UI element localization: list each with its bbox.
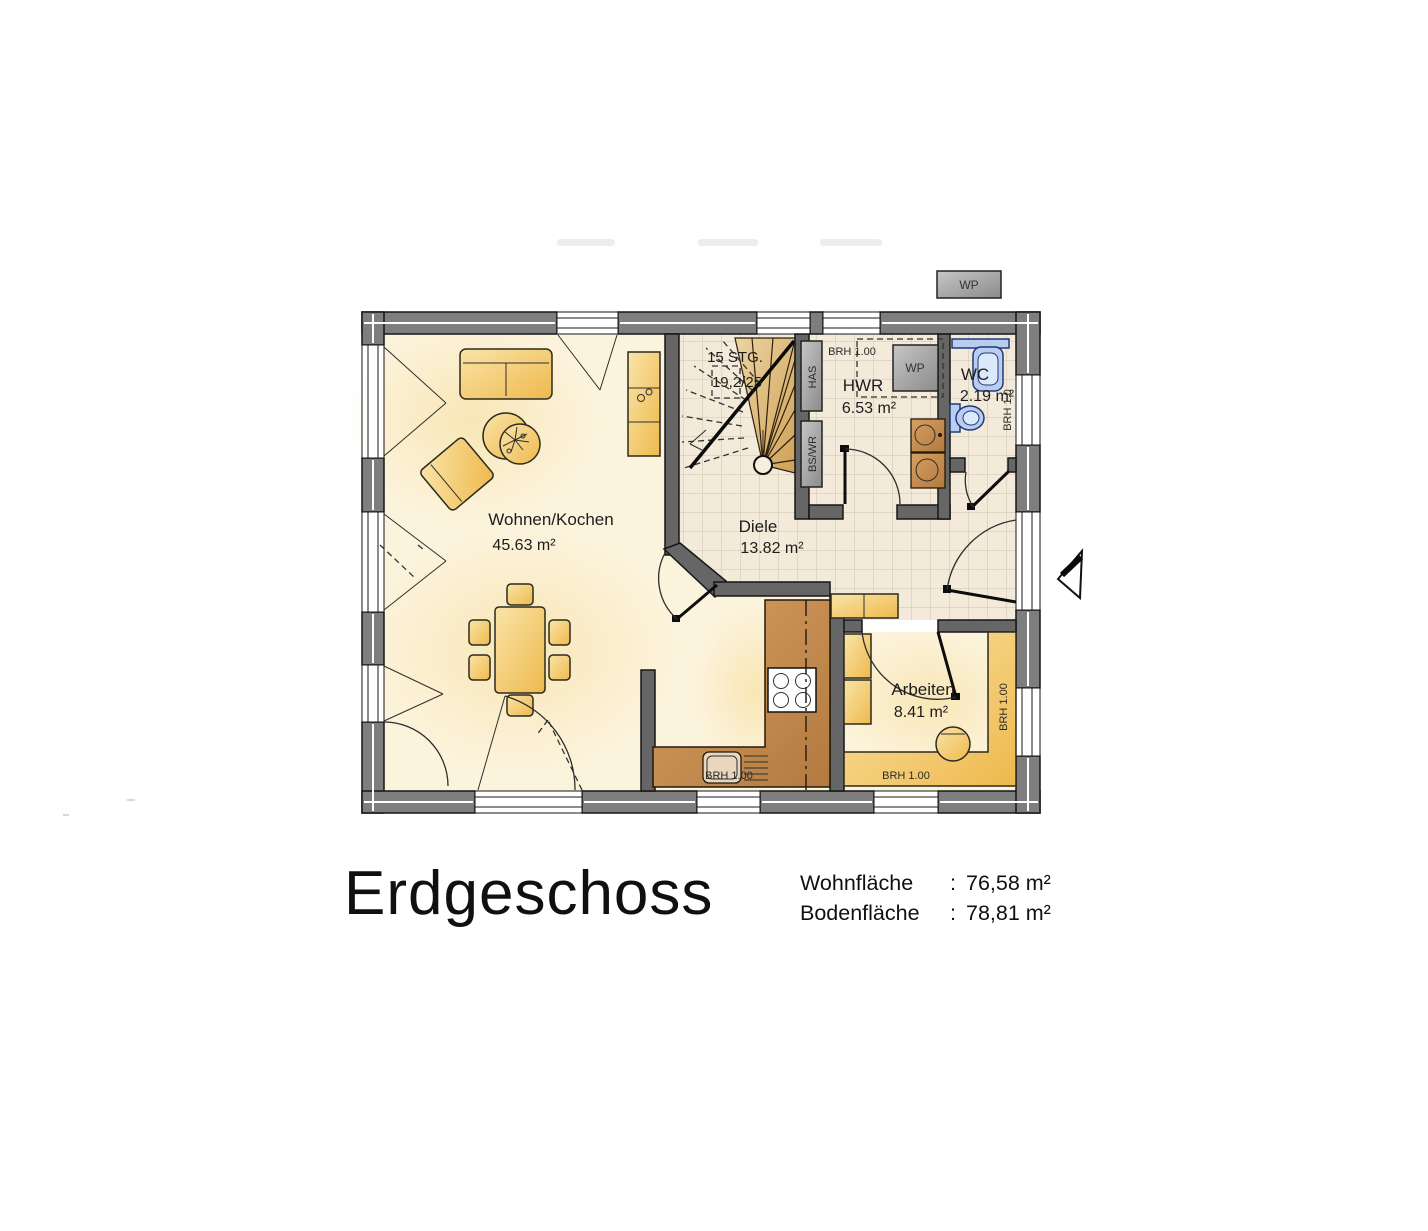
dining-chair: [549, 655, 570, 680]
sill-label-hwr: BRH 1.00: [828, 346, 876, 358]
dining-chair: [549, 620, 570, 645]
room-area-diele: 13.82 m²: [740, 540, 804, 557]
window-arbeiten-south: [874, 791, 938, 813]
window-living-2: [362, 512, 384, 612]
dining-table: [495, 607, 545, 693]
dining-chair: [469, 655, 490, 680]
window-hwr: [823, 312, 880, 334]
room-name-wohnen-kochen: Wohnen/Kochen: [488, 510, 613, 529]
room-name-diele: Diele: [739, 517, 778, 536]
has-label: HAS: [807, 366, 819, 389]
wall: [1008, 458, 1016, 472]
room-name-wc: WC: [961, 365, 989, 384]
office-cabinet: [844, 634, 871, 678]
window-stairwell: [757, 312, 810, 334]
wall: [809, 505, 843, 519]
dining-chair: [469, 620, 490, 645]
floor-area-label: Bodenfläche: [800, 898, 950, 928]
dining-chair: [507, 584, 533, 605]
door-terrace-south: [475, 791, 582, 813]
bswr-label: BS/WR: [807, 436, 819, 472]
sill-label-arbeiten-south: BRH 1.00: [882, 770, 930, 782]
separator: :: [950, 898, 966, 928]
separator: :: [950, 868, 966, 898]
area-summary: Wohnfläche:76,58 m² Bodenfläche:78,81 m²: [800, 868, 1086, 928]
floorplan-sheet: WP Wohnen/Kochen 45.63 m² Diele 13.82 m²…: [0, 0, 1428, 1231]
entrance-arrow-icon: [1058, 551, 1082, 598]
wall: [665, 334, 679, 555]
wall: [938, 620, 1016, 632]
window-kitchen: [697, 791, 760, 813]
living-area-value: 76,58 m²: [966, 868, 1086, 898]
wp-legend-label: WP: [959, 278, 978, 292]
room-area-arbeiten: 8.41 m²: [894, 704, 949, 721]
sill-label-wc: BRH 1.0: [1002, 389, 1014, 431]
door-entrance: [1016, 512, 1040, 610]
room-name-arbeiten: Arbeiten: [891, 680, 954, 699]
window-living-1: [362, 345, 384, 458]
floor-area-row: Bodenfläche:78,81 m²: [800, 898, 1086, 928]
stair-count-label: 15 STG.: [707, 349, 763, 366]
sill-label-kitchen: BRH 1.00: [705, 770, 753, 782]
window-wc: [1016, 375, 1040, 445]
window-arbeiten-east: [1016, 688, 1040, 756]
stair-newel-post: [754, 456, 772, 474]
sill-label-arbeiten-east: BRH 1.00: [998, 683, 1010, 731]
living-area-row: Wohnfläche:76,58 m²: [800, 868, 1086, 898]
wc-toilet-seat: [963, 411, 979, 425]
office-chair: [936, 727, 970, 761]
door-top-terrace: [557, 312, 618, 334]
wall: [950, 458, 965, 472]
floorplan-drawing: WP Wohnen/Kochen 45.63 m² Diele 13.82 m²…: [0, 0, 1428, 1231]
living-area-label: Wohnfläche: [800, 868, 950, 898]
room-area-hwr: 6.53 m²: [842, 400, 897, 417]
office-cabinet: [844, 680, 871, 724]
shelf-unit: [628, 352, 660, 456]
washer-knob-icon: [938, 433, 942, 437]
wall: [714, 582, 830, 596]
heat-pump-label: WP: [905, 361, 924, 375]
floor-title: Erdgeschoss: [344, 858, 713, 929]
room-name-hwr: HWR: [843, 376, 884, 395]
room-area-wohnen-kochen: 45.63 m²: [492, 537, 556, 554]
wall: [830, 596, 844, 791]
wp-legend-box: WP: [937, 271, 1001, 298]
floor-area-value: 78,81 m²: [966, 898, 1086, 928]
window-living-3: [362, 665, 384, 722]
wall: [810, 312, 823, 334]
stair-ratio-label: 19,2/25: [712, 374, 762, 391]
